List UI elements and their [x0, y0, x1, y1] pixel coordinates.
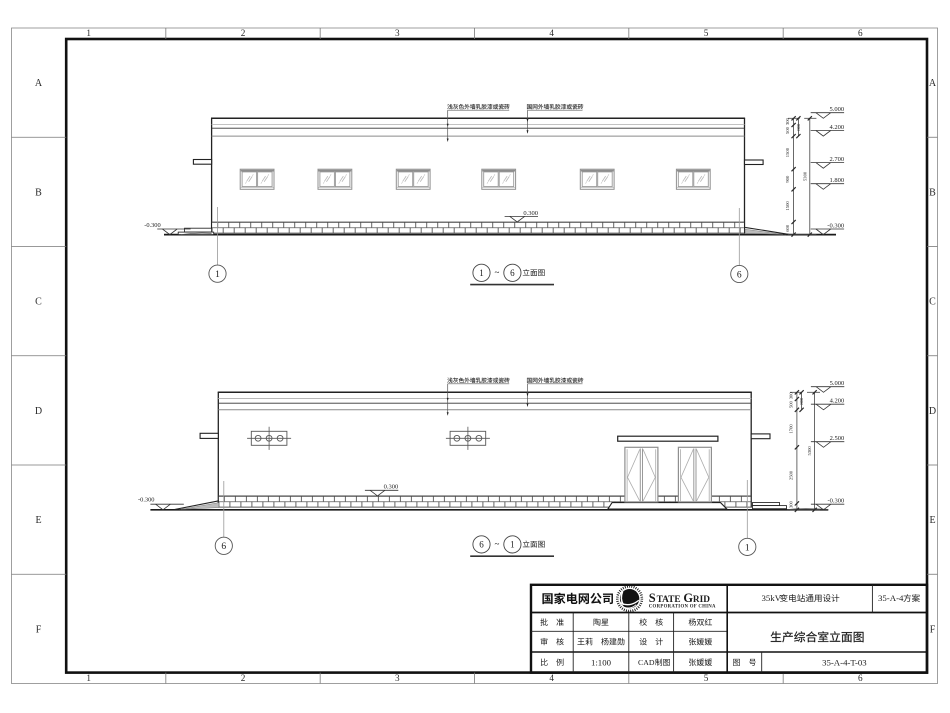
- svg-text:900: 900: [785, 175, 790, 183]
- svg-text:2.500: 2.500: [830, 435, 845, 442]
- svg-text:300: 300: [788, 500, 793, 508]
- svg-text:~: ~: [494, 268, 499, 278]
- svg-text:4: 4: [549, 28, 554, 38]
- svg-text:2500: 2500: [788, 470, 793, 480]
- svg-text:800: 800: [799, 397, 804, 405]
- svg-text:2.700: 2.700: [829, 156, 844, 163]
- svg-text:1500: 1500: [785, 147, 790, 157]
- svg-text:6: 6: [737, 270, 742, 280]
- svg-text:RID: RID: [693, 595, 710, 605]
- svg-text:1: 1: [510, 540, 515, 550]
- svg-text:E: E: [35, 515, 41, 526]
- svg-text:1: 1: [86, 28, 91, 38]
- svg-text:1: 1: [215, 270, 220, 280]
- svg-text:-0.300: -0.300: [144, 222, 161, 229]
- svg-text:1.800: 1.800: [829, 177, 844, 184]
- svg-text:A: A: [35, 78, 43, 89]
- svg-text:D: D: [929, 406, 936, 417]
- svg-text:4.200: 4.200: [829, 124, 844, 131]
- svg-text:300: 300: [785, 117, 790, 125]
- svg-text:5: 5: [704, 673, 709, 683]
- svg-text:35-A-4-T-03: 35-A-4-T-03: [822, 657, 867, 667]
- svg-text:6: 6: [858, 673, 863, 683]
- svg-text:-0.300: -0.300: [138, 497, 155, 504]
- svg-text:CAD: CAD: [638, 658, 655, 667]
- svg-text:35kV: 35kV: [762, 593, 782, 603]
- svg-text:3: 3: [395, 673, 400, 683]
- svg-text:2: 2: [241, 673, 246, 683]
- svg-text:1500: 1500: [785, 201, 790, 211]
- svg-text:1: 1: [745, 543, 750, 553]
- svg-text:5.000: 5.000: [830, 380, 845, 387]
- svg-text:~: ~: [494, 539, 499, 549]
- svg-text:6: 6: [221, 542, 226, 552]
- svg-text:3: 3: [395, 28, 400, 38]
- svg-text:1:100: 1:100: [591, 657, 612, 667]
- svg-text:35-A-4: 35-A-4: [878, 593, 904, 603]
- svg-text:1700: 1700: [788, 424, 793, 434]
- svg-text:S: S: [649, 591, 656, 605]
- svg-text:600: 600: [785, 224, 790, 232]
- svg-text:500: 500: [785, 126, 790, 134]
- svg-text:800: 800: [796, 123, 801, 131]
- svg-text:4: 4: [549, 673, 554, 683]
- svg-text:5300: 5300: [807, 446, 812, 456]
- svg-text:500: 500: [788, 400, 793, 408]
- svg-text:A: A: [929, 78, 937, 89]
- svg-text:B: B: [35, 187, 42, 198]
- svg-text:300: 300: [788, 392, 793, 400]
- svg-text:5300: 5300: [802, 171, 807, 181]
- svg-text:-0.300: -0.300: [827, 222, 844, 229]
- svg-text:0.300: 0.300: [384, 484, 399, 491]
- svg-text:4.200: 4.200: [830, 398, 845, 405]
- svg-text:0.300: 0.300: [523, 210, 538, 217]
- svg-text:CORPORATION OF CHINA: CORPORATION OF CHINA: [649, 605, 716, 610]
- svg-text:-0.300: -0.300: [828, 498, 845, 505]
- svg-text:C: C: [929, 297, 936, 308]
- svg-text:6: 6: [510, 268, 515, 278]
- svg-text:TATE: TATE: [657, 595, 681, 605]
- svg-text:E: E: [929, 515, 935, 526]
- svg-text:5: 5: [704, 28, 709, 38]
- svg-text:F: F: [36, 624, 42, 635]
- svg-text:C: C: [35, 297, 42, 308]
- svg-text:1: 1: [479, 268, 484, 278]
- svg-text:F: F: [930, 624, 936, 635]
- svg-text:2: 2: [241, 28, 246, 38]
- svg-text:6: 6: [479, 540, 484, 550]
- svg-text:6: 6: [858, 28, 863, 38]
- svg-text:1: 1: [86, 673, 91, 683]
- svg-text:D: D: [35, 406, 42, 417]
- svg-text:G: G: [683, 591, 693, 605]
- svg-text:B: B: [929, 187, 936, 198]
- svg-text:5.000: 5.000: [829, 106, 844, 113]
